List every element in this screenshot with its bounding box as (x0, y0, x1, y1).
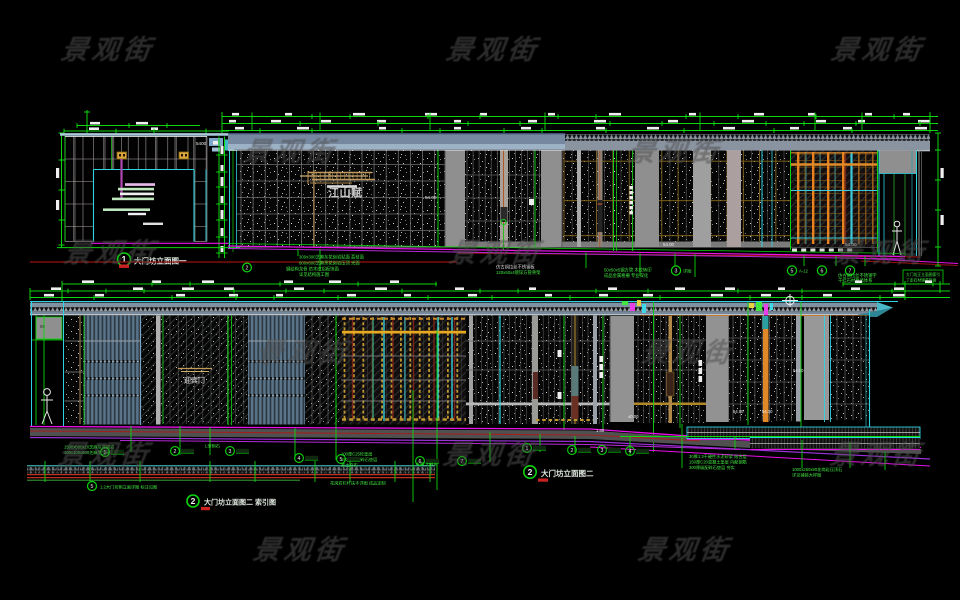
svg-text:4: 4 (298, 456, 301, 462)
svg-text:大门坊立面图二: 大门坊立面图二 (541, 468, 594, 478)
svg-text:景观街: 景观街 (251, 534, 349, 565)
svg-text:景观街: 景观街 (441, 439, 539, 470)
svg-text:1.68: 1.68 (596, 428, 605, 433)
svg-text:5: 5 (340, 457, 343, 463)
svg-text:景观街: 景观街 (636, 534, 734, 565)
svg-text:300厚级配碎石垫层 夯实: 300厚级配碎石垫层 夯实 (689, 464, 735, 471)
svg-text:景观街: 景观街 (639, 337, 737, 368)
svg-text:成品金属格栅 专业深化: 成品金属格栅 专业深化 (604, 272, 649, 279)
svg-text:大门坊立面图二 索引图: 大门坊立面图二 索引图 (204, 498, 276, 507)
svg-text:景观街: 景观街 (828, 439, 926, 470)
svg-text:景观街: 景观街 (254, 337, 352, 368)
svg-text:2: 2 (174, 449, 177, 455)
svg-text:5400: 5400 (196, 141, 207, 146)
svg-text:5: 5 (791, 269, 794, 275)
svg-text:景观街: 景观街 (832, 237, 930, 268)
svg-text:3: 3 (675, 269, 678, 275)
svg-text:85: 85 (40, 324, 46, 329)
svg-text:300x300芝麻灰花岗岩贴面 荔枝面: 300x300芝麻灰花岗岩贴面 荔枝面 (299, 254, 365, 261)
svg-text:54.00: 54.00 (663, 242, 675, 247)
svg-text:54.00: 54.00 (793, 368, 804, 373)
svg-text:5: 5 (91, 484, 94, 490)
svg-text:详见铺装大样图: 详见铺装大样图 (792, 471, 821, 478)
svg-text:景观街: 景观街 (829, 34, 927, 65)
svg-text:详图: 详图 (683, 268, 691, 275)
svg-text:120x60x4镀锌方管骨架: 120x60x4镀锌方管骨架 (496, 269, 541, 276)
svg-text:2: 2 (246, 266, 249, 272)
svg-text:花岗岩栏杆扶手详图 成品定制: 花岗岩栏杆扶手详图 成品定制 (330, 480, 386, 487)
svg-text:大门坊正立面图索引: 大门坊正立面图索引 (906, 272, 940, 277)
svg-text:迎宾门: 迎宾门 (184, 376, 205, 385)
svg-text:1:2大门坊侧立面详图 标注见图: 1:2大门坊侧立面详图 标注见图 (100, 484, 157, 491)
svg-text:详见结构施工图: 详见结构施工图 (299, 271, 329, 278)
svg-text:6: 6 (821, 269, 824, 275)
svg-text:L型侧石: L型侧石 (205, 443, 220, 450)
svg-text:景观街: 景观街 (59, 34, 157, 65)
svg-text:2: 2 (191, 496, 196, 506)
svg-text:4: 4 (629, 449, 632, 455)
svg-text:景观街: 景观街 (62, 237, 160, 268)
svg-text:景观街: 景观街 (56, 439, 154, 470)
svg-text:景观街: 景观街 (444, 34, 542, 65)
svg-text:3: 3 (601, 448, 604, 454)
svg-text:景观街: 景观街 (447, 237, 545, 268)
svg-text:6: 6 (419, 459, 422, 465)
svg-text:54.00: 54.00 (425, 195, 437, 200)
svg-text:±0.00: ±0.00 (628, 414, 639, 419)
svg-text:2: 2 (571, 448, 574, 454)
svg-text:54.00: 54.00 (762, 409, 773, 414)
svg-text:600x600芝麻黑花岗岩压顶 光面: 600x600芝麻黑花岗岩压顶 光面 (299, 260, 360, 267)
svg-text:3: 3 (229, 449, 232, 455)
svg-text:景观街: 景观街 (241, 136, 339, 167)
svg-text:景观街: 景观街 (626, 136, 724, 167)
svg-text:54.00: 54.00 (733, 409, 744, 414)
svg-text:A-12: A-12 (799, 269, 809, 274)
